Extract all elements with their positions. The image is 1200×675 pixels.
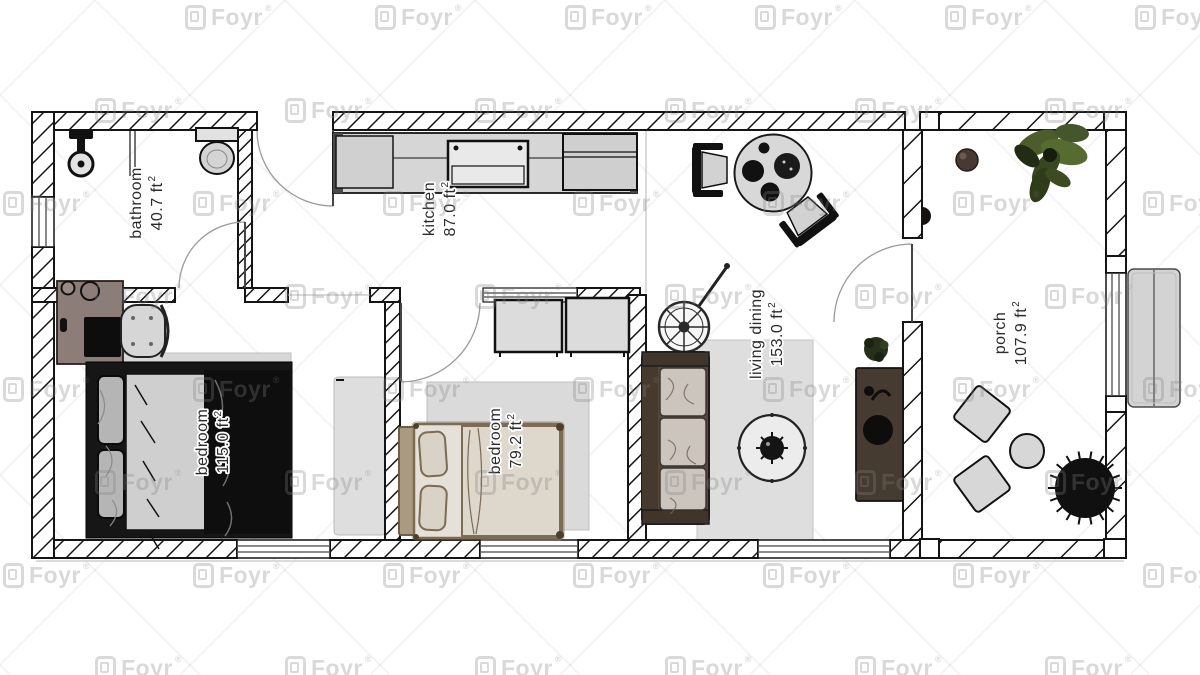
desk-chair-icon bbox=[121, 305, 168, 357]
svg-text:107.9 ft2: 107.9 ft2 bbox=[1011, 301, 1030, 365]
rock-icon bbox=[956, 149, 978, 171]
pouf-icon bbox=[1010, 434, 1044, 468]
svg-text:kitchen: kitchen bbox=[421, 182, 438, 236]
svg-text:87.0 ft2: 87.0 ft2 bbox=[440, 181, 459, 236]
sink-icon bbox=[69, 130, 93, 176]
wall-segment bbox=[1106, 112, 1126, 260]
floorplan-drawing: bathroom 40.7 ft2 kitchen 87.0 ft2 bedro… bbox=[0, 0, 1200, 675]
wall-segment bbox=[578, 540, 758, 558]
svg-text:153.0 ft2: 153.0 ft2 bbox=[767, 302, 786, 366]
kitchen-counter-icon bbox=[333, 133, 637, 193]
dining-chair-icon bbox=[692, 143, 727, 197]
door-arc bbox=[179, 222, 245, 288]
svg-text:115.0 ft2: 115.0 ft2 bbox=[213, 410, 232, 473]
wall-segment bbox=[32, 540, 237, 558]
plant-icon bbox=[1010, 123, 1090, 205]
svg-text:40.7 ft2: 40.7 ft2 bbox=[147, 175, 166, 230]
wall-segment bbox=[903, 322, 922, 540]
window bbox=[237, 540, 330, 558]
wardrobe-icon bbox=[495, 300, 562, 357]
svg-text:living dining: living dining bbox=[748, 289, 765, 379]
floorplan-canvas: bathroom 40.7 ft2 kitchen 87.0 ft2 bedro… bbox=[0, 0, 1200, 675]
tv-console-icon bbox=[856, 368, 903, 501]
wall-segment bbox=[330, 540, 480, 558]
wall-segment bbox=[370, 288, 400, 302]
wall-segment bbox=[385, 302, 400, 540]
room-label-bathroom: bathroom 40.7 ft2 bbox=[128, 167, 166, 239]
wall-fixture-icon bbox=[922, 207, 931, 225]
door-arc bbox=[834, 244, 912, 322]
toilet-icon bbox=[196, 128, 238, 174]
sofa-icon bbox=[642, 352, 709, 524]
bed-icon bbox=[399, 422, 564, 540]
dining-table-icon bbox=[735, 135, 812, 212]
svg-text:bathroom: bathroom bbox=[128, 167, 145, 239]
wall-segment bbox=[922, 540, 1106, 558]
svg-text:porch: porch bbox=[992, 312, 1009, 355]
wardrobe-icon bbox=[566, 298, 629, 357]
door-arc bbox=[257, 130, 333, 206]
window bbox=[480, 540, 578, 558]
ac-unit-icon bbox=[1128, 269, 1180, 407]
wall-segment bbox=[245, 288, 288, 302]
window bbox=[32, 197, 54, 247]
desk-icon bbox=[57, 281, 123, 364]
svg-text:bedroom: bedroom bbox=[194, 409, 211, 476]
pouf-icon bbox=[953, 385, 1012, 444]
wall-segment bbox=[333, 112, 905, 130]
plant-icon bbox=[864, 337, 889, 362]
wall-segment bbox=[903, 130, 922, 238]
bed-icon bbox=[86, 362, 292, 549]
door-arc bbox=[401, 303, 480, 382]
svg-text:bedroom: bedroom bbox=[487, 408, 504, 475]
fan-icon bbox=[659, 263, 730, 352]
room-label-porch: porch 107.9 ft2 bbox=[992, 301, 1030, 365]
wall-segment bbox=[890, 540, 922, 558]
window bbox=[758, 540, 890, 558]
svg-text:79.2 ft2: 79.2 ft2 bbox=[506, 413, 525, 468]
window bbox=[1106, 273, 1126, 396]
wall-segment bbox=[32, 112, 54, 197]
